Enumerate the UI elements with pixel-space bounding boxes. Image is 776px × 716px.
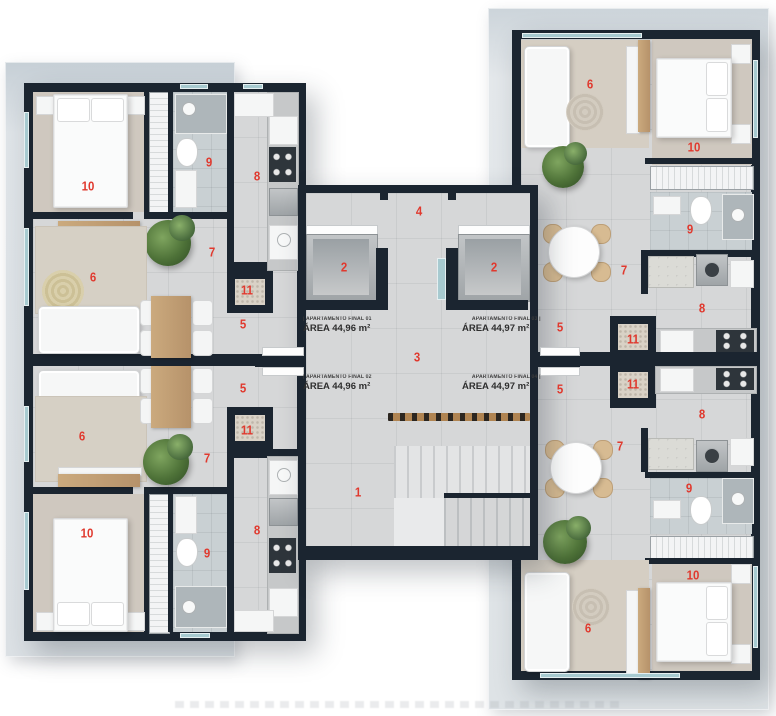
apt01-oven-door bbox=[277, 233, 291, 247]
apt02-kitchen-sink bbox=[269, 498, 298, 526]
marker-apt04-bedroom: 10 bbox=[687, 568, 700, 583]
apt03-area: ÁREA 44,97 m² bbox=[462, 324, 528, 335]
marker-apt04-kitchen: 8 bbox=[699, 407, 705, 422]
window-left-2 bbox=[24, 228, 29, 306]
window-right-top bbox=[522, 33, 642, 38]
marker-apt03-living: 6 bbox=[587, 77, 593, 92]
window-left-1 bbox=[24, 112, 29, 168]
apt01-wall-bath-kitchen bbox=[227, 83, 234, 269]
apt03-nightstand-top bbox=[731, 44, 751, 64]
apt02-dining-table bbox=[151, 366, 191, 428]
apt04-wall-kitchen bbox=[641, 428, 648, 472]
apt02-wall-closet-right bbox=[168, 494, 173, 632]
apt04-dining-table bbox=[550, 442, 602, 494]
apt03-wall-wardrobe bbox=[645, 158, 760, 164]
apt04-cooktop-dial bbox=[704, 448, 720, 464]
marker-apt04-hallway: 7 bbox=[617, 439, 623, 454]
apt03-pillow-1 bbox=[706, 62, 728, 96]
apt03-wardrobe bbox=[650, 166, 754, 190]
marker-apt03-hallway: 7 bbox=[621, 263, 627, 278]
marker-apt04-entry: 5 bbox=[557, 382, 563, 397]
apt02-wall-bedroom-north bbox=[33, 487, 133, 494]
apt04-gas-stove bbox=[716, 368, 754, 390]
marker-hall: 3 bbox=[414, 350, 420, 365]
apt02-wall-bath-kitchen bbox=[227, 452, 234, 632]
entry-wall-right bbox=[532, 355, 580, 367]
apt01-chair-3 bbox=[192, 300, 213, 326]
apt01-stove bbox=[269, 147, 296, 182]
apt02-oven-door bbox=[277, 468, 291, 482]
apt04-label: APARTAMENTO FINAL 04 | ÁREA 44,97 m² bbox=[462, 374, 528, 393]
marker-corridor: 4 bbox=[416, 204, 422, 219]
apt03-tv-console bbox=[638, 40, 650, 132]
apt02-wall-bath-north bbox=[144, 487, 234, 494]
entry-wall-left bbox=[255, 355, 303, 367]
marker-apt03-bathroom: 9 bbox=[687, 222, 693, 237]
apt04-name: APARTAMENTO FINAL 04 | bbox=[472, 375, 528, 381]
window-right-bottom bbox=[540, 673, 680, 678]
apt02-tv-console bbox=[58, 474, 140, 487]
apt02-pillow-2 bbox=[91, 602, 124, 626]
apt03-plant bbox=[542, 146, 584, 188]
apt02-sink bbox=[175, 496, 197, 534]
marker-stair-landing: 1 bbox=[355, 485, 361, 500]
watermark-text bbox=[175, 701, 625, 708]
apt03-entry-door bbox=[540, 347, 580, 356]
marker-apt03-laundry: 11 bbox=[627, 332, 639, 347]
apt04-tv-console bbox=[638, 588, 650, 678]
window-left-4 bbox=[24, 512, 29, 590]
floor-plan: | APARTAMENTO FINAL 01 ÁREA 44,96 m² APA… bbox=[0, 0, 776, 716]
window-top-bath1 bbox=[180, 84, 208, 89]
apt03-kitchen-counter-top bbox=[648, 256, 694, 288]
apt04-pillow-2 bbox=[706, 622, 728, 656]
apt02-name: | APARTAMENTO FINAL 02 bbox=[303, 375, 359, 381]
core-top-tick-2 bbox=[448, 193, 456, 200]
apt03-label: APARTAMENTO FINAL 03 | ÁREA 44,97 m² bbox=[462, 316, 528, 335]
marker-elevator-right: 2 bbox=[491, 260, 497, 275]
apt01-wardrobe bbox=[149, 92, 170, 214]
apt01-entry-door bbox=[262, 347, 304, 356]
marker-apt02-bedroom: 10 bbox=[81, 526, 94, 541]
apt04-wardrobe bbox=[650, 536, 754, 560]
marker-apt02-entry: 5 bbox=[240, 381, 246, 396]
apt02-kitchen-cabinet bbox=[234, 610, 274, 632]
apt01-pillow-2 bbox=[91, 98, 124, 122]
apt04-toilet bbox=[690, 496, 712, 525]
stair-landing-mid bbox=[394, 498, 444, 546]
apt01-label: | APARTAMENTO FINAL 01 ÁREA 44,96 m² bbox=[303, 316, 369, 335]
window-top-kitchen1 bbox=[243, 84, 263, 89]
core-glass-panel bbox=[437, 258, 446, 300]
apt04-kitchen-sink bbox=[660, 368, 694, 392]
apt04-sofa bbox=[524, 572, 570, 672]
marker-apt01-bedroom: 10 bbox=[82, 179, 95, 194]
apt03-shower-head bbox=[731, 208, 745, 222]
apt03-name: APARTAMENTO FINAL 03 | bbox=[472, 317, 528, 323]
marker-apt04-laundry: 11 bbox=[627, 377, 639, 392]
core-column-2 bbox=[446, 248, 458, 310]
marker-apt01-bathroom: 9 bbox=[206, 155, 212, 170]
marker-apt02-bathroom: 9 bbox=[204, 546, 210, 561]
window-right-east-1 bbox=[753, 60, 758, 138]
apt03-pillow-2 bbox=[706, 98, 728, 132]
apt04-entry-door bbox=[540, 367, 580, 376]
apt01-kitchen-sink bbox=[269, 188, 298, 216]
apt01-toilet bbox=[176, 138, 198, 167]
apt02-chair-3 bbox=[192, 368, 213, 394]
apt04-plant bbox=[543, 520, 587, 564]
marker-apt01-kitchen: 8 bbox=[254, 169, 260, 184]
core-top-tick-1 bbox=[380, 193, 388, 200]
apt01-area: ÁREA 44,96 m² bbox=[303, 324, 369, 335]
apt03-sofa bbox=[524, 46, 570, 148]
apt04-area: ÁREA 44,97 m² bbox=[462, 382, 528, 393]
apt01-shower bbox=[175, 94, 227, 134]
apt03-kitchen-sink bbox=[660, 330, 694, 354]
marker-apt02-laundry: 11 bbox=[241, 423, 253, 438]
marker-apt01-entry: 5 bbox=[240, 317, 246, 332]
apt04-kitchen-counter-low bbox=[648, 438, 694, 470]
apt02-stove bbox=[269, 538, 296, 573]
apt01-nightstand-right bbox=[126, 96, 145, 115]
marker-apt02-living: 6 bbox=[79, 429, 85, 444]
apt03-round-rug bbox=[566, 93, 604, 131]
apt01-chair-4 bbox=[192, 330, 213, 356]
apt01-dining-table bbox=[151, 296, 191, 358]
marker-elevator-left: 2 bbox=[341, 260, 347, 275]
apt04-minifridge bbox=[730, 438, 754, 466]
window-right-east-2 bbox=[753, 566, 758, 648]
stair-rail-center bbox=[444, 493, 530, 498]
marker-apt01-laundry: 11 bbox=[241, 283, 253, 298]
apt03-toilet bbox=[690, 196, 712, 225]
apt01-plant bbox=[145, 220, 191, 266]
stair-flight-upper bbox=[394, 446, 530, 498]
apt04-shower-head bbox=[731, 492, 745, 506]
apt04-nightstand-bottom bbox=[731, 644, 751, 664]
marker-apt03-entry: 5 bbox=[557, 320, 563, 335]
apt01-sink bbox=[175, 170, 197, 208]
apt02-area: ÁREA 44,96 m² bbox=[303, 382, 369, 393]
marker-apt03-bedroom: 10 bbox=[688, 140, 701, 155]
apt01-fridge bbox=[269, 116, 298, 145]
apt04-pillow-1 bbox=[706, 586, 728, 620]
apt01-sofa bbox=[38, 306, 140, 354]
apt02-entry-door bbox=[262, 367, 304, 376]
apt04-nightstand-top bbox=[731, 564, 751, 584]
apt01-kitchen-cabinet bbox=[234, 93, 274, 117]
apt03-minifridge bbox=[730, 260, 754, 288]
marker-apt01-living: 6 bbox=[90, 270, 96, 285]
apt02-wardrobe bbox=[149, 494, 170, 634]
marker-apt02-kitchen: 8 bbox=[254, 523, 260, 538]
apt02-chair-4 bbox=[192, 398, 213, 424]
window-left-3 bbox=[24, 406, 29, 462]
apt03-dining-table bbox=[548, 226, 600, 278]
apt03-gas-stove bbox=[716, 330, 754, 352]
stair-flight-lower bbox=[444, 498, 530, 546]
apt02-nightstand-right bbox=[126, 612, 145, 631]
marker-apt04-living: 6 bbox=[585, 621, 591, 636]
apt03-wall-kitchen bbox=[641, 250, 648, 294]
apt03-sink bbox=[653, 196, 681, 215]
window-bottom-bath2 bbox=[180, 633, 210, 638]
marker-apt04-bathroom: 9 bbox=[686, 481, 692, 496]
apt02-plant bbox=[143, 439, 189, 485]
apt01-shower-head bbox=[182, 102, 196, 116]
apt03-cooktop-dial bbox=[704, 262, 720, 278]
core-column-1 bbox=[376, 248, 388, 310]
apt01-wall-bedroom-south bbox=[33, 212, 133, 219]
apt01-wall-closet-right bbox=[168, 92, 173, 219]
stair-guard-rail bbox=[388, 413, 530, 421]
apt04-sink bbox=[653, 500, 681, 519]
apt03-nightstand-bottom bbox=[731, 124, 751, 144]
elevator-left-base bbox=[306, 300, 376, 310]
marker-apt01-hallway: 7 bbox=[209, 245, 215, 260]
marker-apt03-kitchen: 8 bbox=[699, 301, 705, 316]
apt01-pillow-1 bbox=[57, 98, 90, 122]
apt02-toilet bbox=[176, 538, 198, 567]
apt01-name: | APARTAMENTO FINAL 01 bbox=[303, 317, 359, 323]
elevator-right-base bbox=[458, 300, 528, 310]
apt02-label: | APARTAMENTO FINAL 02 ÁREA 44,96 m² bbox=[303, 374, 369, 393]
apt02-pillow-1 bbox=[57, 602, 90, 626]
marker-apt02-hallway: 7 bbox=[204, 451, 210, 466]
apt02-shower-head bbox=[182, 600, 196, 614]
